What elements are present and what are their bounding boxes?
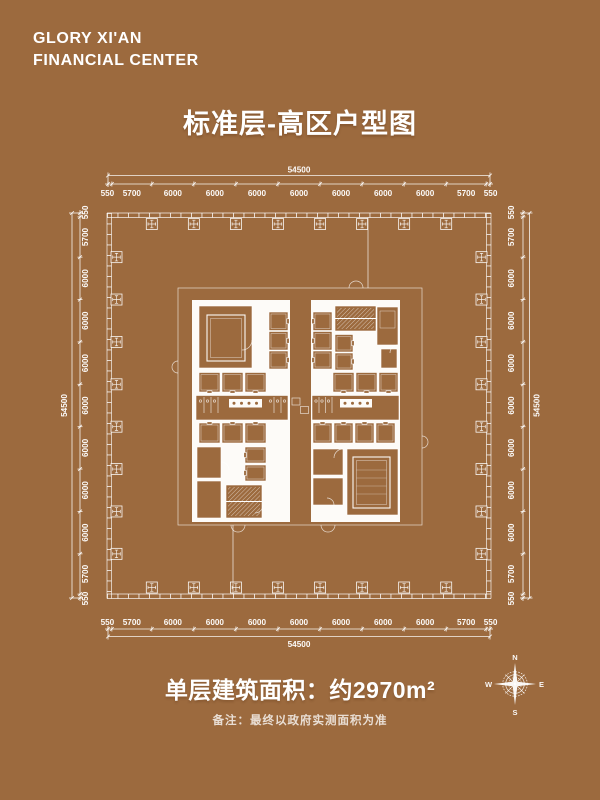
dim-label: 6000 <box>81 311 90 330</box>
dim-label: 550 <box>81 205 90 219</box>
service-room <box>381 349 397 368</box>
elevator-shaft <box>313 423 332 443</box>
service-room <box>313 478 343 505</box>
building-perimeter-wall <box>107 213 491 599</box>
elevator-shaft <box>199 373 220 393</box>
elevator-shaft <box>313 332 332 351</box>
dim-label: 550 <box>507 205 516 219</box>
column-icon <box>272 219 283 230</box>
dim-label: 6000 <box>507 311 516 330</box>
column-icon <box>357 219 368 230</box>
dim-label: 6000 <box>507 523 516 542</box>
column-icon <box>476 421 487 432</box>
elevator-shaft <box>313 351 332 369</box>
dim-label: 5700 <box>507 227 516 246</box>
elevator-shaft <box>335 353 353 370</box>
service-core <box>192 300 400 522</box>
column-icon <box>476 464 487 475</box>
column-icon <box>441 582 452 593</box>
column-icon <box>399 219 410 230</box>
dim-label: 6000 <box>416 189 435 198</box>
column-icon <box>315 582 326 593</box>
elevator-shaft <box>199 423 220 443</box>
dim-label: 54500 <box>60 394 69 417</box>
column-icon <box>441 219 452 230</box>
dim-label: 6000 <box>248 189 267 198</box>
dim-label: 550 <box>101 189 115 198</box>
elevator-shaft <box>269 312 288 331</box>
service-room <box>197 481 221 518</box>
elevator-shaft <box>222 373 243 393</box>
dim-label: 6000 <box>374 189 393 198</box>
dim-label: 5700 <box>457 618 476 627</box>
dim-label: 5700 <box>81 564 90 583</box>
column-icon <box>146 219 157 230</box>
dim-label: 5700 <box>123 189 142 198</box>
elevator-shaft <box>334 423 353 443</box>
service-room <box>313 449 343 475</box>
dim-label: 6000 <box>206 618 225 627</box>
column-icon <box>272 582 283 593</box>
elevator-shaft <box>245 447 266 463</box>
dim-label: 6000 <box>507 481 516 500</box>
poster-page: GLORY XI'AN FINANCIAL CENTER 标准层-高区户型图 <box>0 0 600 800</box>
dim-label: 6000 <box>332 618 351 627</box>
dim-label: 6000 <box>81 354 90 373</box>
column-icon <box>111 506 122 517</box>
column-icon <box>111 548 122 559</box>
elevator-shaft <box>356 373 377 393</box>
column-icon <box>476 379 487 390</box>
column-icon <box>476 548 487 559</box>
column-icon <box>476 506 487 517</box>
elevator-shaft <box>313 312 332 331</box>
column-icon <box>111 421 122 432</box>
dim-label: 6000 <box>81 269 90 288</box>
dim-label: 6000 <box>81 481 90 500</box>
column-icon <box>111 464 122 475</box>
dim-label: 6000 <box>81 438 90 457</box>
corridor-stalls <box>292 398 309 414</box>
elevator-shaft <box>245 423 266 443</box>
elevator-shaft <box>333 373 354 393</box>
elevator-shaft <box>245 465 266 481</box>
dim-label: 54500 <box>288 640 311 649</box>
dim-label: 6000 <box>374 618 393 627</box>
dim-label: 6000 <box>507 396 516 415</box>
column-icon <box>188 219 199 230</box>
column-icon <box>315 219 326 230</box>
dim-label: 6000 <box>164 189 183 198</box>
column-icon <box>399 582 410 593</box>
elevator-shaft <box>355 423 374 443</box>
elevator-shaft <box>222 423 243 443</box>
elevator-shaft <box>376 423 395 443</box>
perimeter-columns <box>111 219 487 594</box>
dim-label: 550 <box>101 618 115 627</box>
dim-label: 6000 <box>290 189 309 198</box>
dim-label: 6000 <box>164 618 183 627</box>
column-icon <box>230 219 241 230</box>
column-icon <box>476 252 487 263</box>
column-icon <box>111 379 122 390</box>
dim-label: 5700 <box>81 227 90 246</box>
dim-label: 6000 <box>332 189 351 198</box>
column-icon <box>111 294 122 305</box>
column-icon <box>188 582 199 593</box>
dim-label: 6000 <box>290 618 309 627</box>
dim-label: 6000 <box>507 354 516 373</box>
dim-label: 6000 <box>248 618 267 627</box>
dim-label: 6000 <box>81 396 90 415</box>
column-icon <box>476 294 487 305</box>
dim-label: 550 <box>484 189 498 198</box>
elevator-shaft <box>269 332 288 351</box>
dim-label: 54500 <box>288 166 311 175</box>
dim-label: 5700 <box>123 618 142 627</box>
elevator-shaft <box>245 373 266 393</box>
column-icon <box>146 582 157 593</box>
dim-label: 6000 <box>507 438 516 457</box>
dim-label: 6000 <box>416 618 435 627</box>
dim-label: 54500 <box>533 394 542 417</box>
column-icon <box>111 336 122 347</box>
dim-label: 550 <box>507 591 516 605</box>
column-icon <box>230 582 241 593</box>
column-icon <box>357 582 368 593</box>
elevator-shaft <box>335 335 353 353</box>
dim-label: 5700 <box>457 189 476 198</box>
dim-label: 5700 <box>507 564 516 583</box>
dim-label: 550 <box>484 618 498 627</box>
service-room <box>197 447 221 478</box>
dim-label: 6000 <box>81 523 90 542</box>
disclaimer-note: 备注：最终以政府实测面积为准 <box>0 712 600 728</box>
elevator-shaft <box>269 351 288 369</box>
column-icon <box>111 252 122 263</box>
column-icon <box>476 336 487 347</box>
dim-label: 6000 <box>507 269 516 288</box>
floor-area-text: 单层建筑面积：约2970m² <box>0 671 600 705</box>
elevator-shaft <box>379 373 398 393</box>
dim-label: 6000 <box>206 189 225 198</box>
compass-north-label: N <box>512 653 517 662</box>
